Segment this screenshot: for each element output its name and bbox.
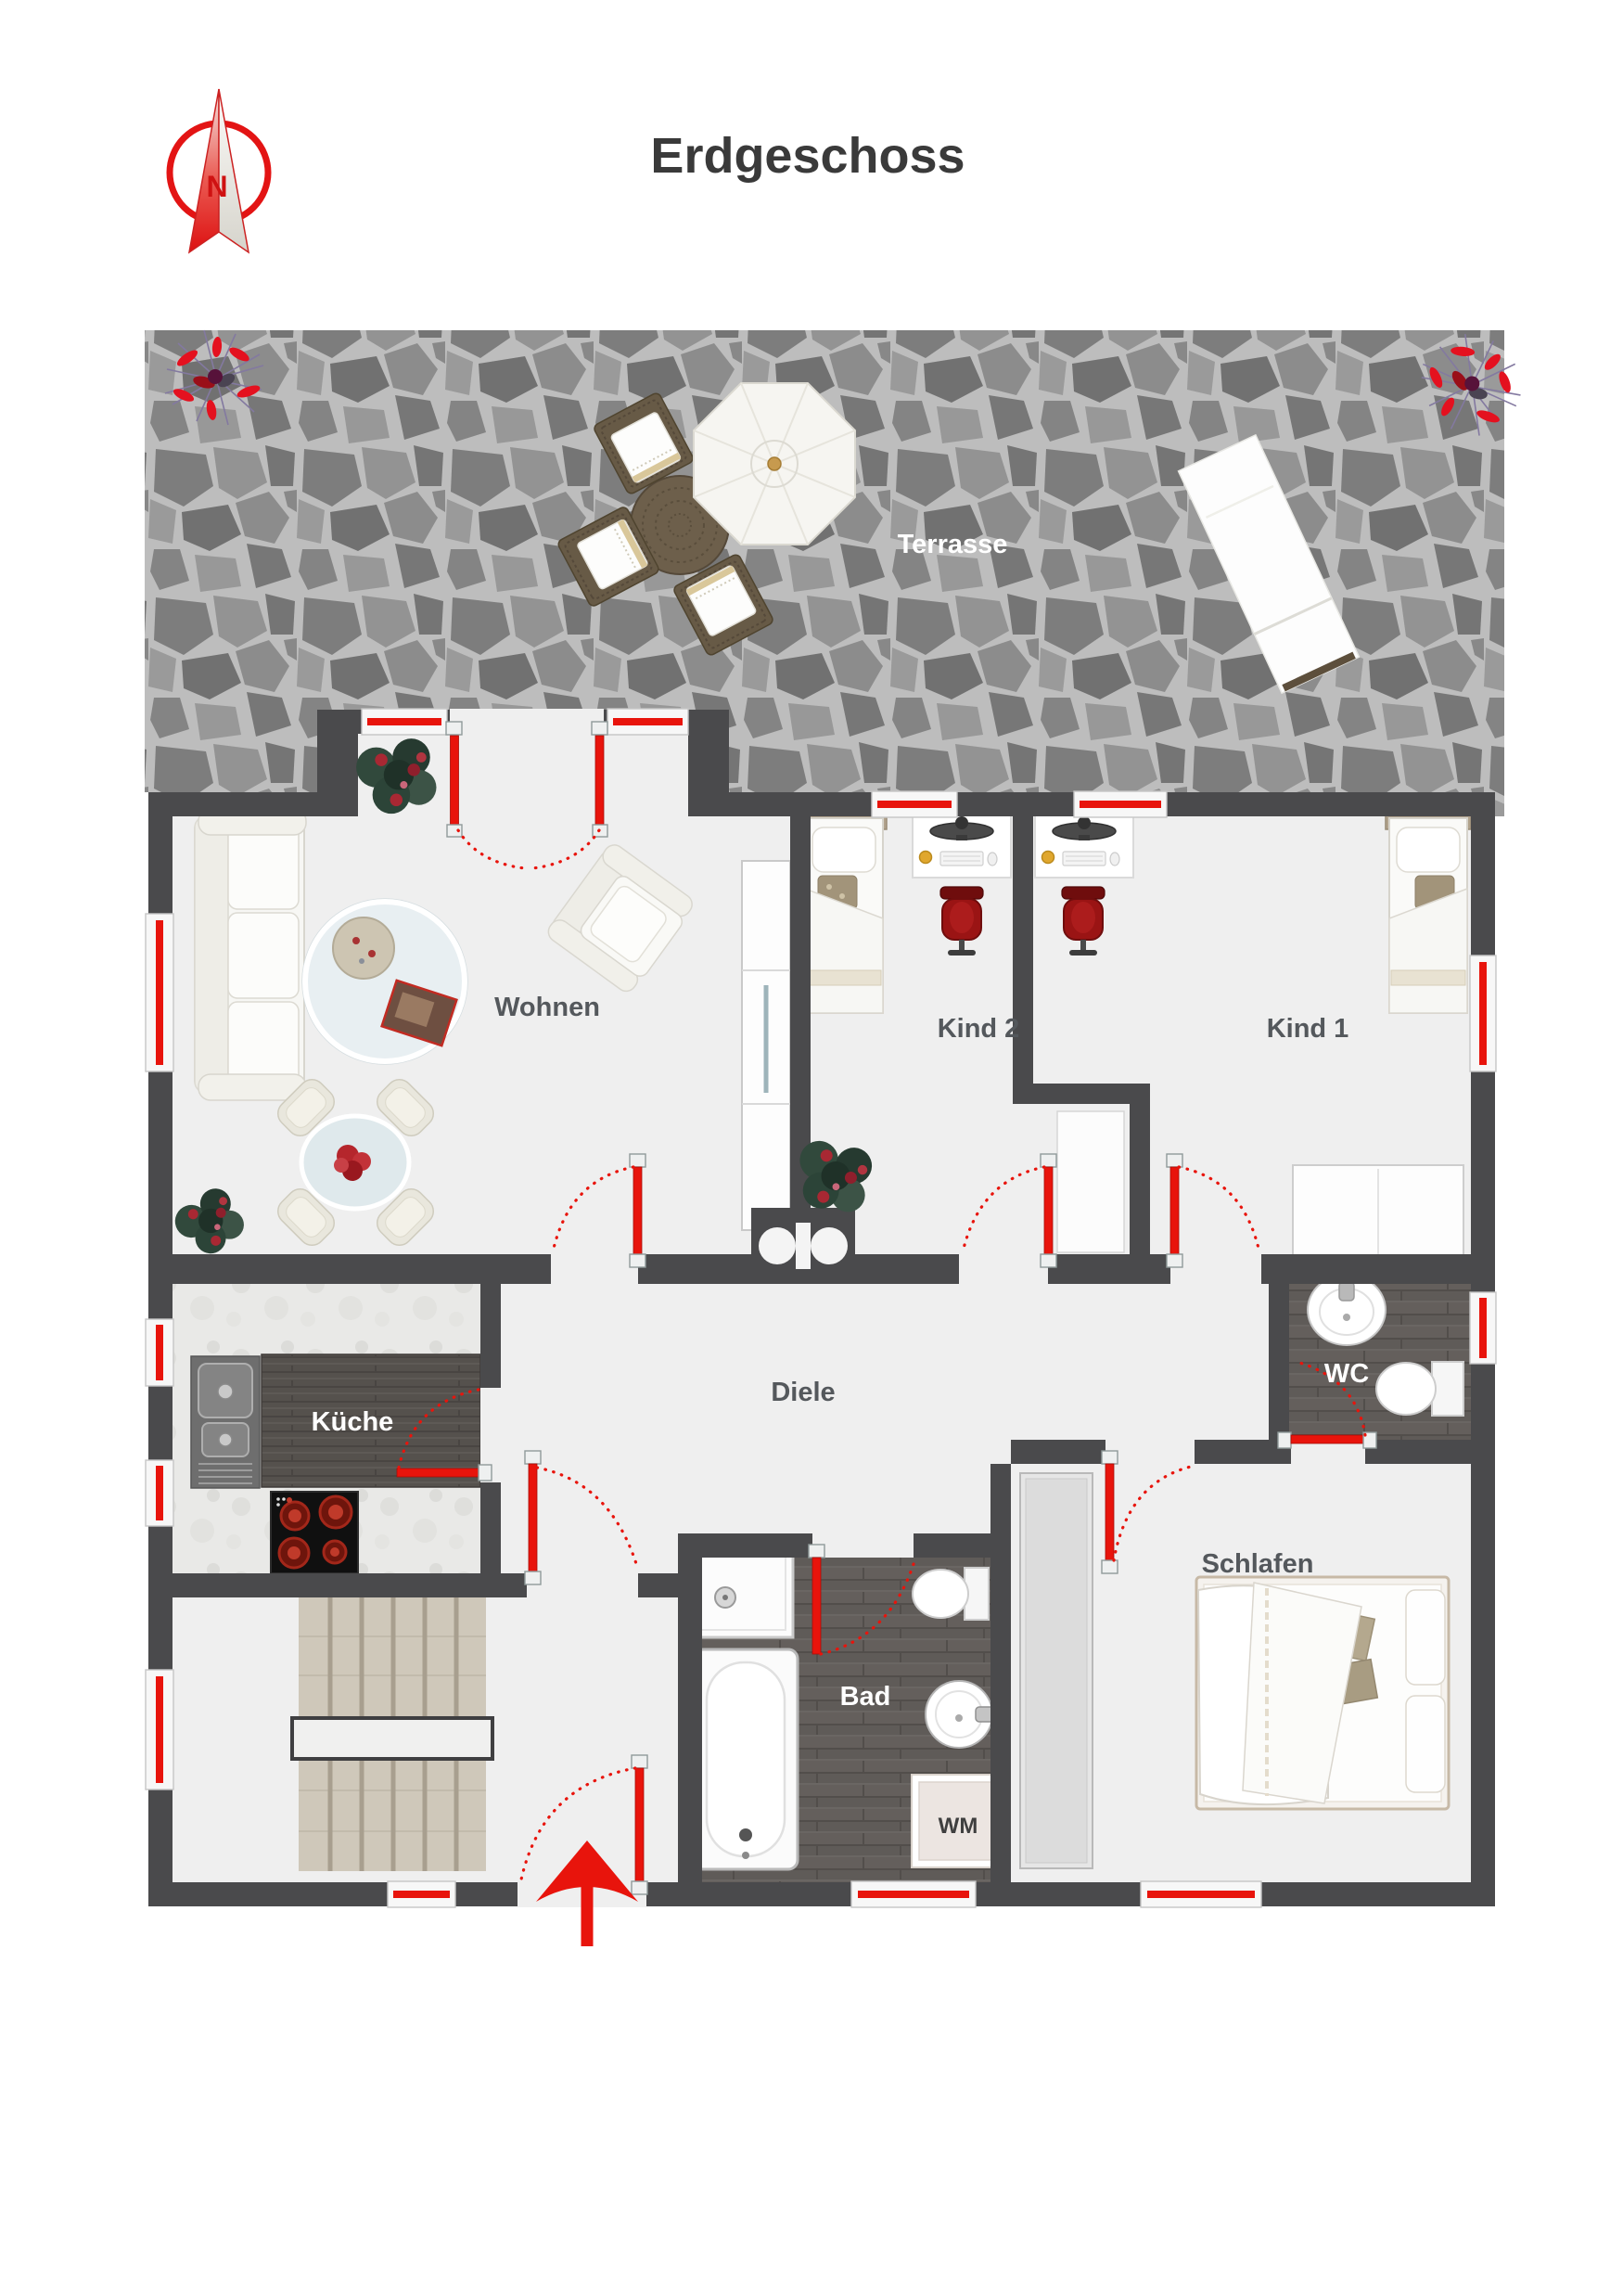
stair-cut-line [292,1718,492,1759]
double-bed [1196,1577,1449,1809]
cabinet-kind2 [1057,1111,1124,1252]
compass: N [170,89,268,252]
window-south-flur [388,1881,455,1907]
window-north-kind1 [1074,791,1167,817]
bed-kind1 [1386,813,1471,1013]
wardrobe-schlafen [1020,1473,1093,1868]
wc-sink [1308,1275,1386,1345]
room-label-kind2: Kind 2 [938,1014,1020,1044]
room-label-kind1: Kind 1 [1267,1014,1349,1044]
decor-tray [333,917,394,979]
window-east-kind1 [1470,956,1496,1071]
sofa [195,809,306,1100]
cooktop [271,1492,358,1573]
window-west-wohnen [146,914,173,1071]
tall-cabinet [742,861,790,1230]
page-title: Erdgeschoss [650,128,965,184]
desk-kind1 [1035,811,1133,878]
desk-kind2 [913,811,1011,878]
coffee-table [302,899,467,1064]
parasol [694,383,855,545]
floor-plan: Terrasse [0,0,1623,2296]
window-south-schlafen [1141,1881,1261,1907]
window-north-kind2 [872,791,957,817]
room-label-kueche: Küche [312,1407,394,1437]
window-north-wohnen-left [362,709,447,735]
room-label-terrasse: Terrasse [898,530,1008,559]
window-east-wc [1470,1292,1496,1364]
north-label: N [206,170,227,203]
wc-toilet [1376,1362,1463,1416]
window-west-flur [146,1670,173,1789]
room-label-diele: Diele [771,1378,835,1407]
window-west-kueche-1 [146,1319,173,1386]
window-south-bad [851,1881,976,1907]
room-label-wc: WC [1324,1359,1369,1389]
staircase [292,1597,492,1871]
window-north-wohnen-right [607,709,688,735]
bed-kind2 [801,813,887,1013]
room-label-wohnen: Wohnen [494,993,600,1022]
chimney [751,1208,855,1284]
floor-plan-page: Terrasse [0,0,1623,2296]
room-label-bad: Bad [840,1682,891,1712]
window-west-kueche-2 [146,1460,173,1526]
washing-machine-label: WM [939,1814,978,1839]
toilet-bad [913,1568,989,1620]
room-label-schlafen: Schlafen [1202,1549,1314,1579]
bathtub [694,1649,798,1869]
kitchen-sink [191,1356,260,1488]
